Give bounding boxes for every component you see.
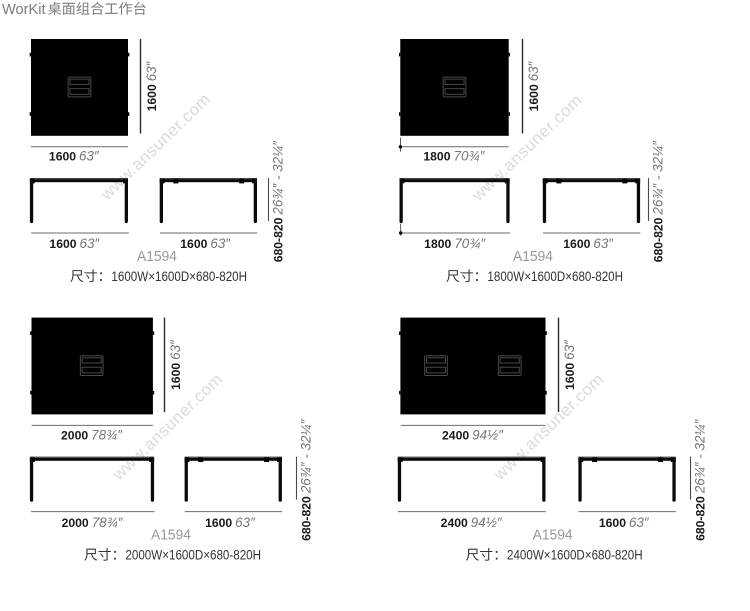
svg-text:160063″: 160063″ [563, 236, 614, 251]
svg-text:WorKit: WorKit [2, 2, 46, 18]
svg-text:2400W×1600D×680-820H: 2400W×1600D×680-820H [507, 547, 643, 563]
svg-text:680-82026¾″ - 32¼″: 680-82026¾″ - 32¼″ [299, 418, 314, 540]
svg-text:160063″: 160063″ [180, 236, 231, 251]
svg-text:160063″: 160063″ [49, 236, 100, 251]
svg-text:1800W×1600D×680-820H: 1800W×1600D×680-820H [487, 268, 623, 284]
svg-text:680-82026¾″ - 32¼″: 680-82026¾″ - 32¼″ [271, 140, 286, 262]
svg-text:A1594: A1594 [513, 248, 553, 265]
svg-text:160063″: 160063″ [168, 339, 183, 390]
svg-text:A1594: A1594 [533, 527, 573, 544]
svg-text:160063″: 160063″ [49, 149, 100, 164]
svg-text:200078¾″: 200078¾″ [61, 427, 123, 442]
svg-text:160063″: 160063″ [562, 339, 577, 390]
svg-text:1600W×1600D×680-820H: 1600W×1600D×680-820H [111, 268, 247, 284]
svg-text:680-82026¾″ - 32¼″: 680-82026¾″ - 32¼″ [651, 140, 666, 262]
svg-text:200078¾″: 200078¾″ [62, 515, 124, 530]
svg-text:180070¾″: 180070¾″ [423, 149, 485, 164]
svg-text:680-82026¾″ - 32¼″: 680-82026¾″ - 32¼″ [693, 418, 708, 540]
svg-text:160063″: 160063″ [144, 60, 159, 111]
svg-text:2000W×1600D×680-820H: 2000W×1600D×680-820H [125, 547, 261, 563]
svg-text:160063″: 160063″ [205, 515, 256, 530]
svg-text:160063″: 160063″ [526, 60, 541, 111]
svg-text:160063″: 160063″ [599, 515, 650, 530]
svg-text:180070¾″: 180070¾″ [424, 236, 486, 251]
svg-text:A1594: A1594 [137, 248, 177, 265]
svg-text:240094½″: 240094½″ [441, 515, 503, 530]
svg-text:240094½″: 240094½″ [442, 427, 504, 442]
svg-text:A1594: A1594 [151, 527, 191, 544]
